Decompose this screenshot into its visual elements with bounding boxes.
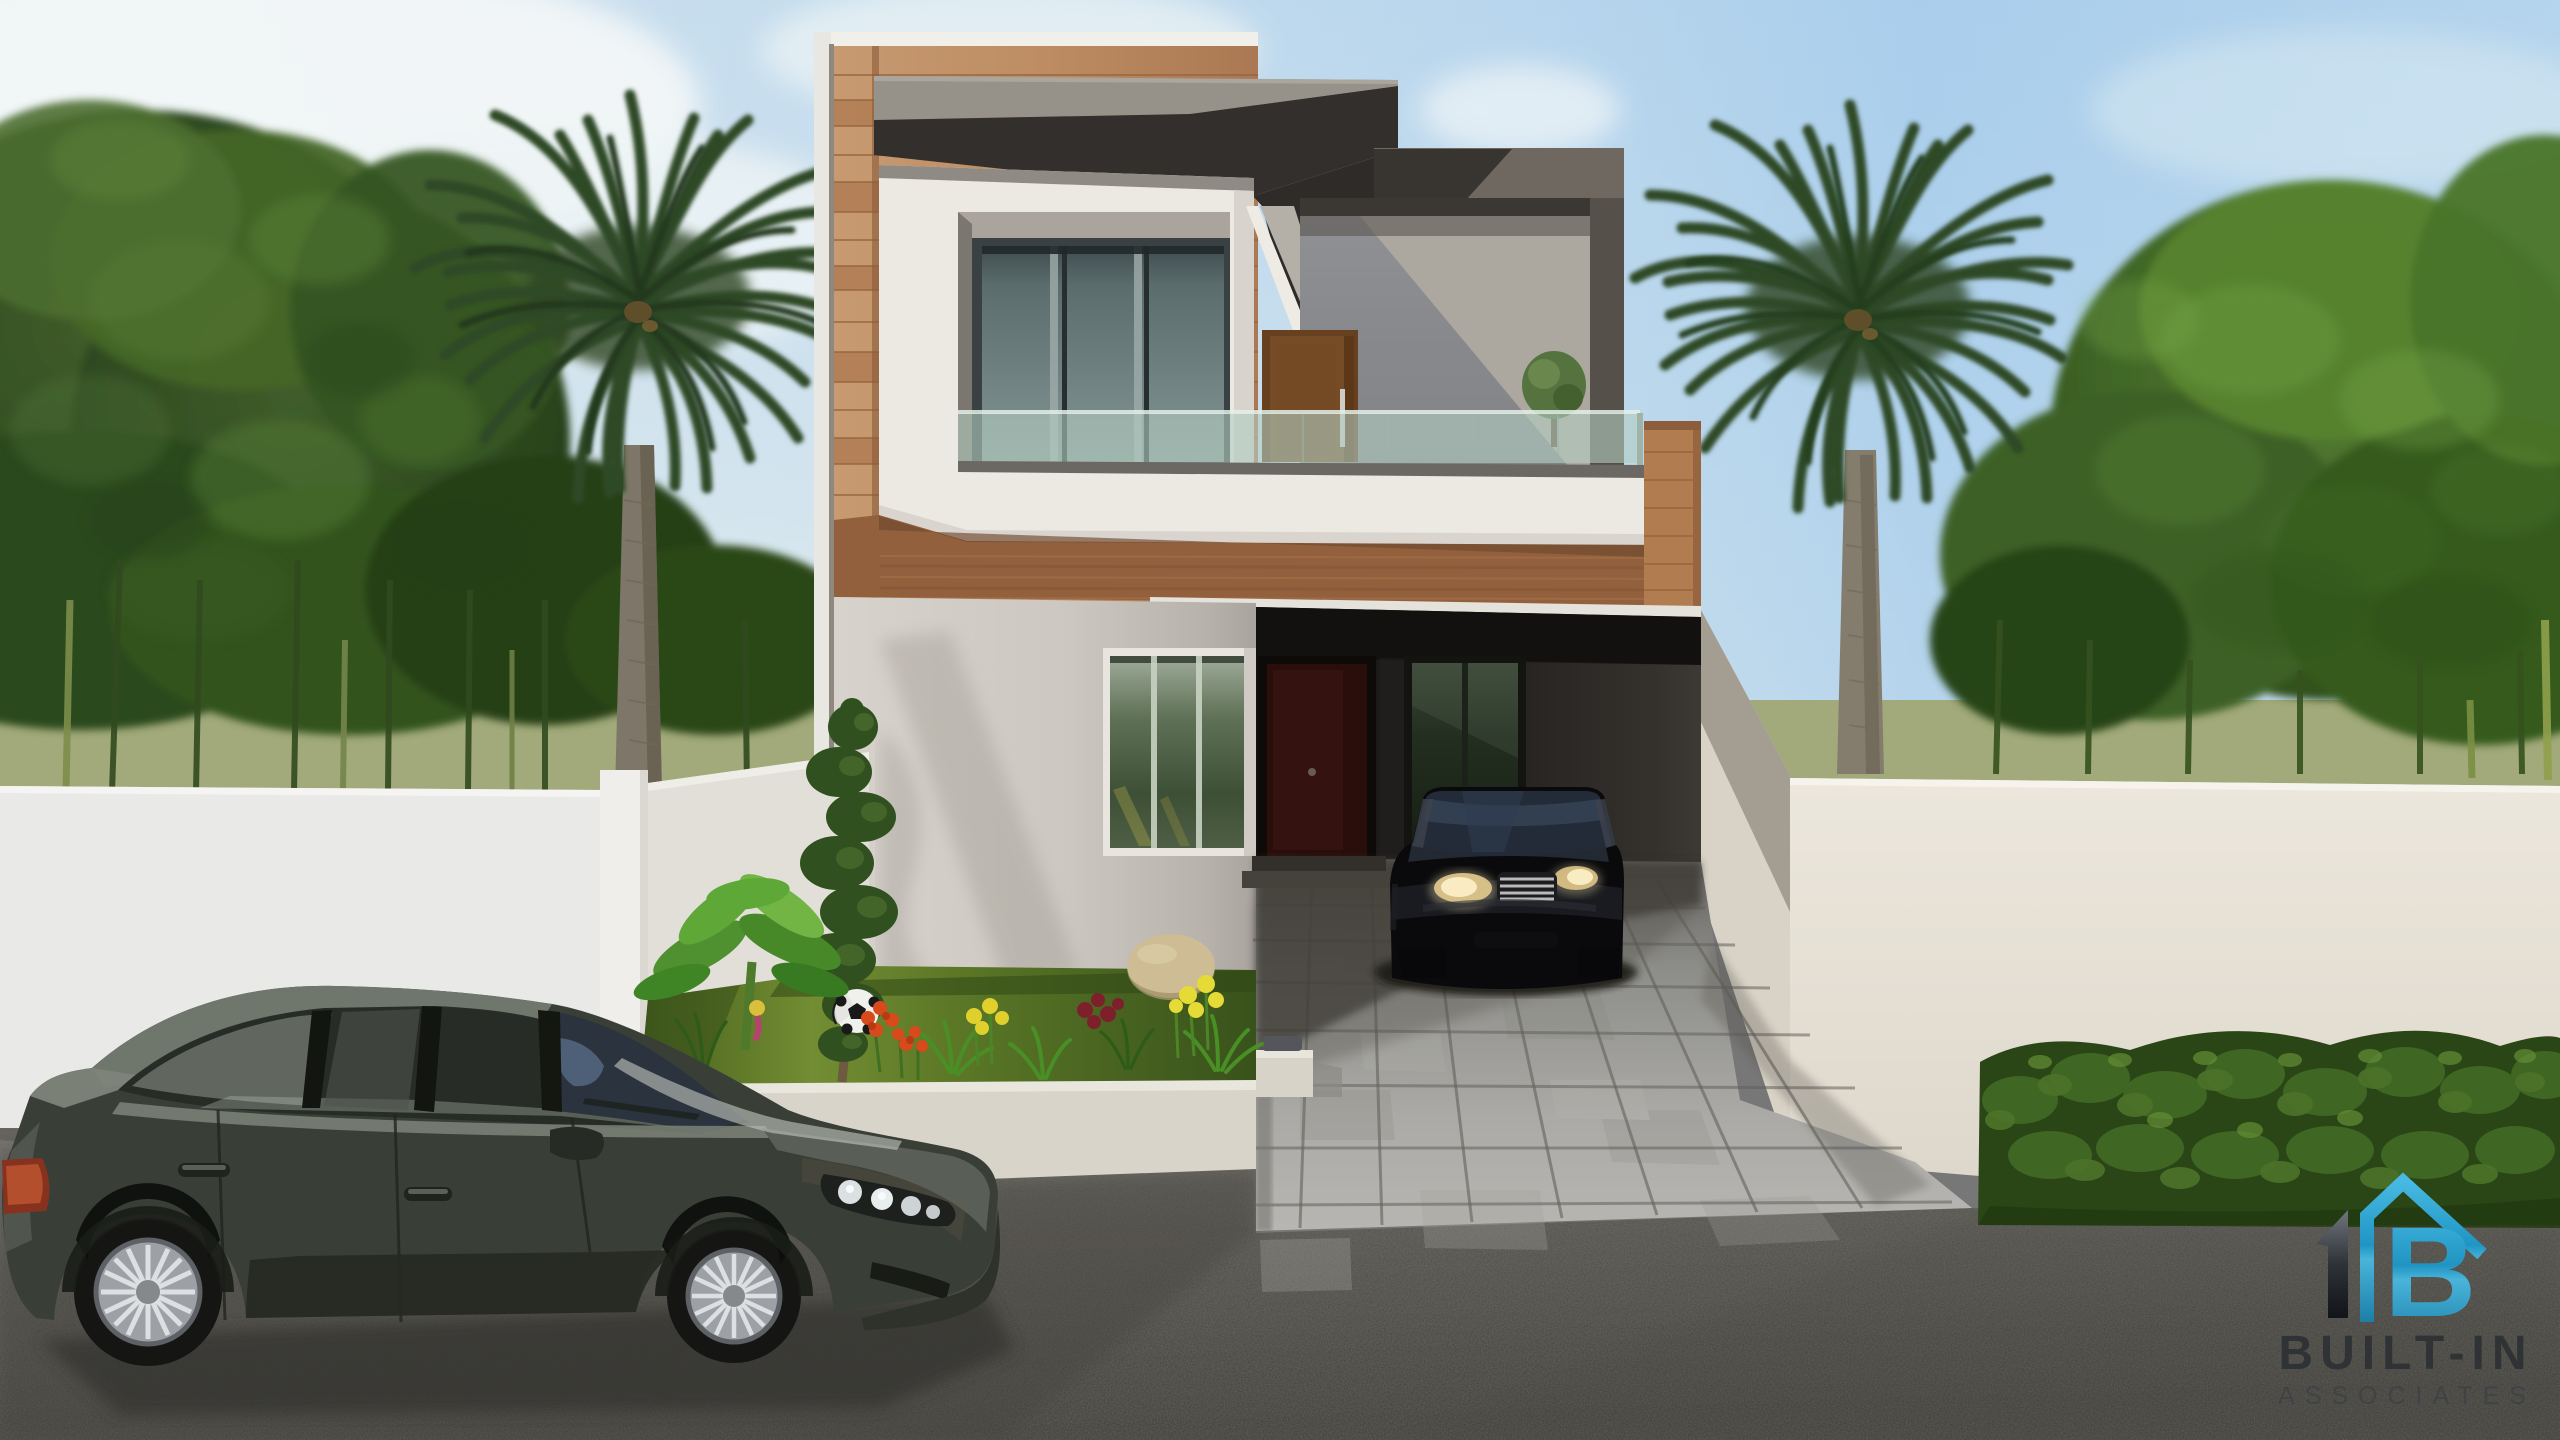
svg-text:ASSOCIATES: ASSOCIATES xyxy=(2278,1382,2536,1410)
svg-text:B: B xyxy=(2384,1201,2472,1344)
svg-text:BUILT-IN: BUILT-IN xyxy=(2278,1327,2533,1380)
